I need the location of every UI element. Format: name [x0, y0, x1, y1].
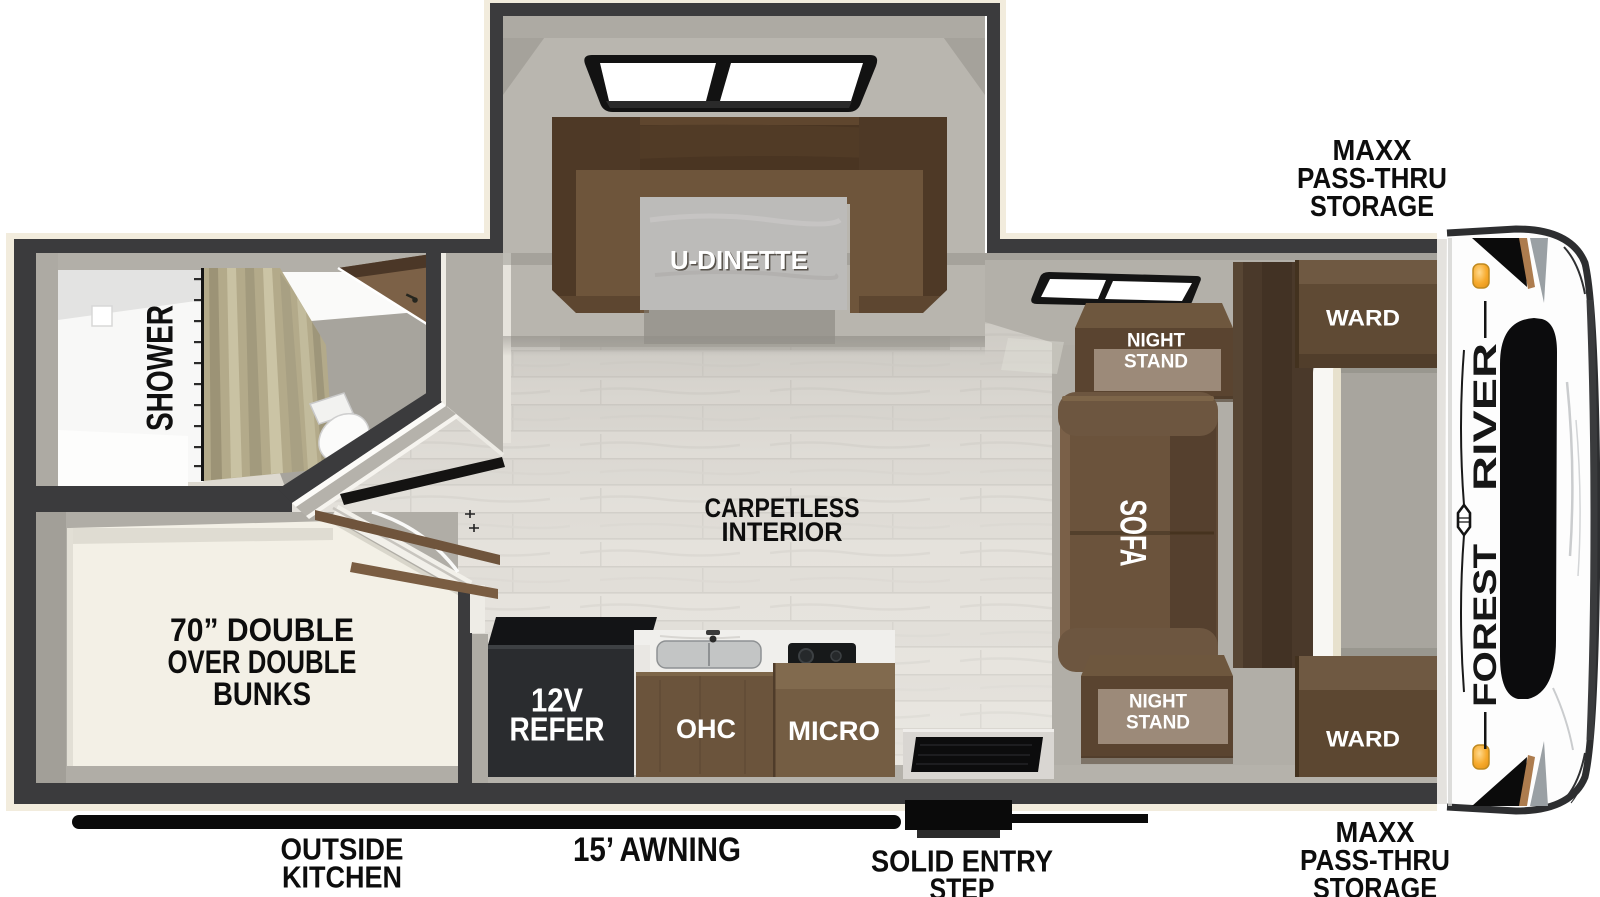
- svg-text:NIGHT: NIGHT: [1129, 692, 1187, 713]
- svg-text:STAND: STAND: [1124, 352, 1188, 373]
- svg-text:70” DOUBLE: 70” DOUBLE: [170, 612, 354, 648]
- svg-text:RIVER: RIVER: [1467, 343, 1503, 491]
- svg-text:15’ AWNING: 15’ AWNING: [573, 831, 741, 869]
- svg-text:BUNKS: BUNKS: [213, 676, 311, 712]
- svg-text:OHC: OHC: [676, 714, 736, 744]
- svg-text:REFER: REFER: [510, 711, 605, 748]
- svg-text:U-DINETTE: U-DINETTE: [670, 245, 808, 275]
- svg-text:FOREST: FOREST: [1467, 543, 1503, 707]
- svg-text:MICRO: MICRO: [788, 716, 880, 746]
- svg-text:WARD: WARD: [1326, 727, 1400, 752]
- svg-text:OVER DOUBLE: OVER DOUBLE: [168, 644, 357, 680]
- svg-text:INTERIOR: INTERIOR: [722, 517, 843, 547]
- svg-text:KITCHEN: KITCHEN: [282, 860, 402, 895]
- svg-text:STEP: STEP: [930, 872, 995, 897]
- svg-text:SHOWER: SHOWER: [140, 305, 181, 431]
- svg-text:SOFA: SOFA: [1113, 500, 1154, 567]
- svg-text:WARD: WARD: [1326, 306, 1400, 331]
- svg-text:STORAGE: STORAGE: [1313, 873, 1437, 897]
- svg-text:NIGHT: NIGHT: [1127, 331, 1185, 352]
- svg-text:STORAGE: STORAGE: [1310, 191, 1434, 223]
- svg-text:STAND: STAND: [1126, 713, 1190, 734]
